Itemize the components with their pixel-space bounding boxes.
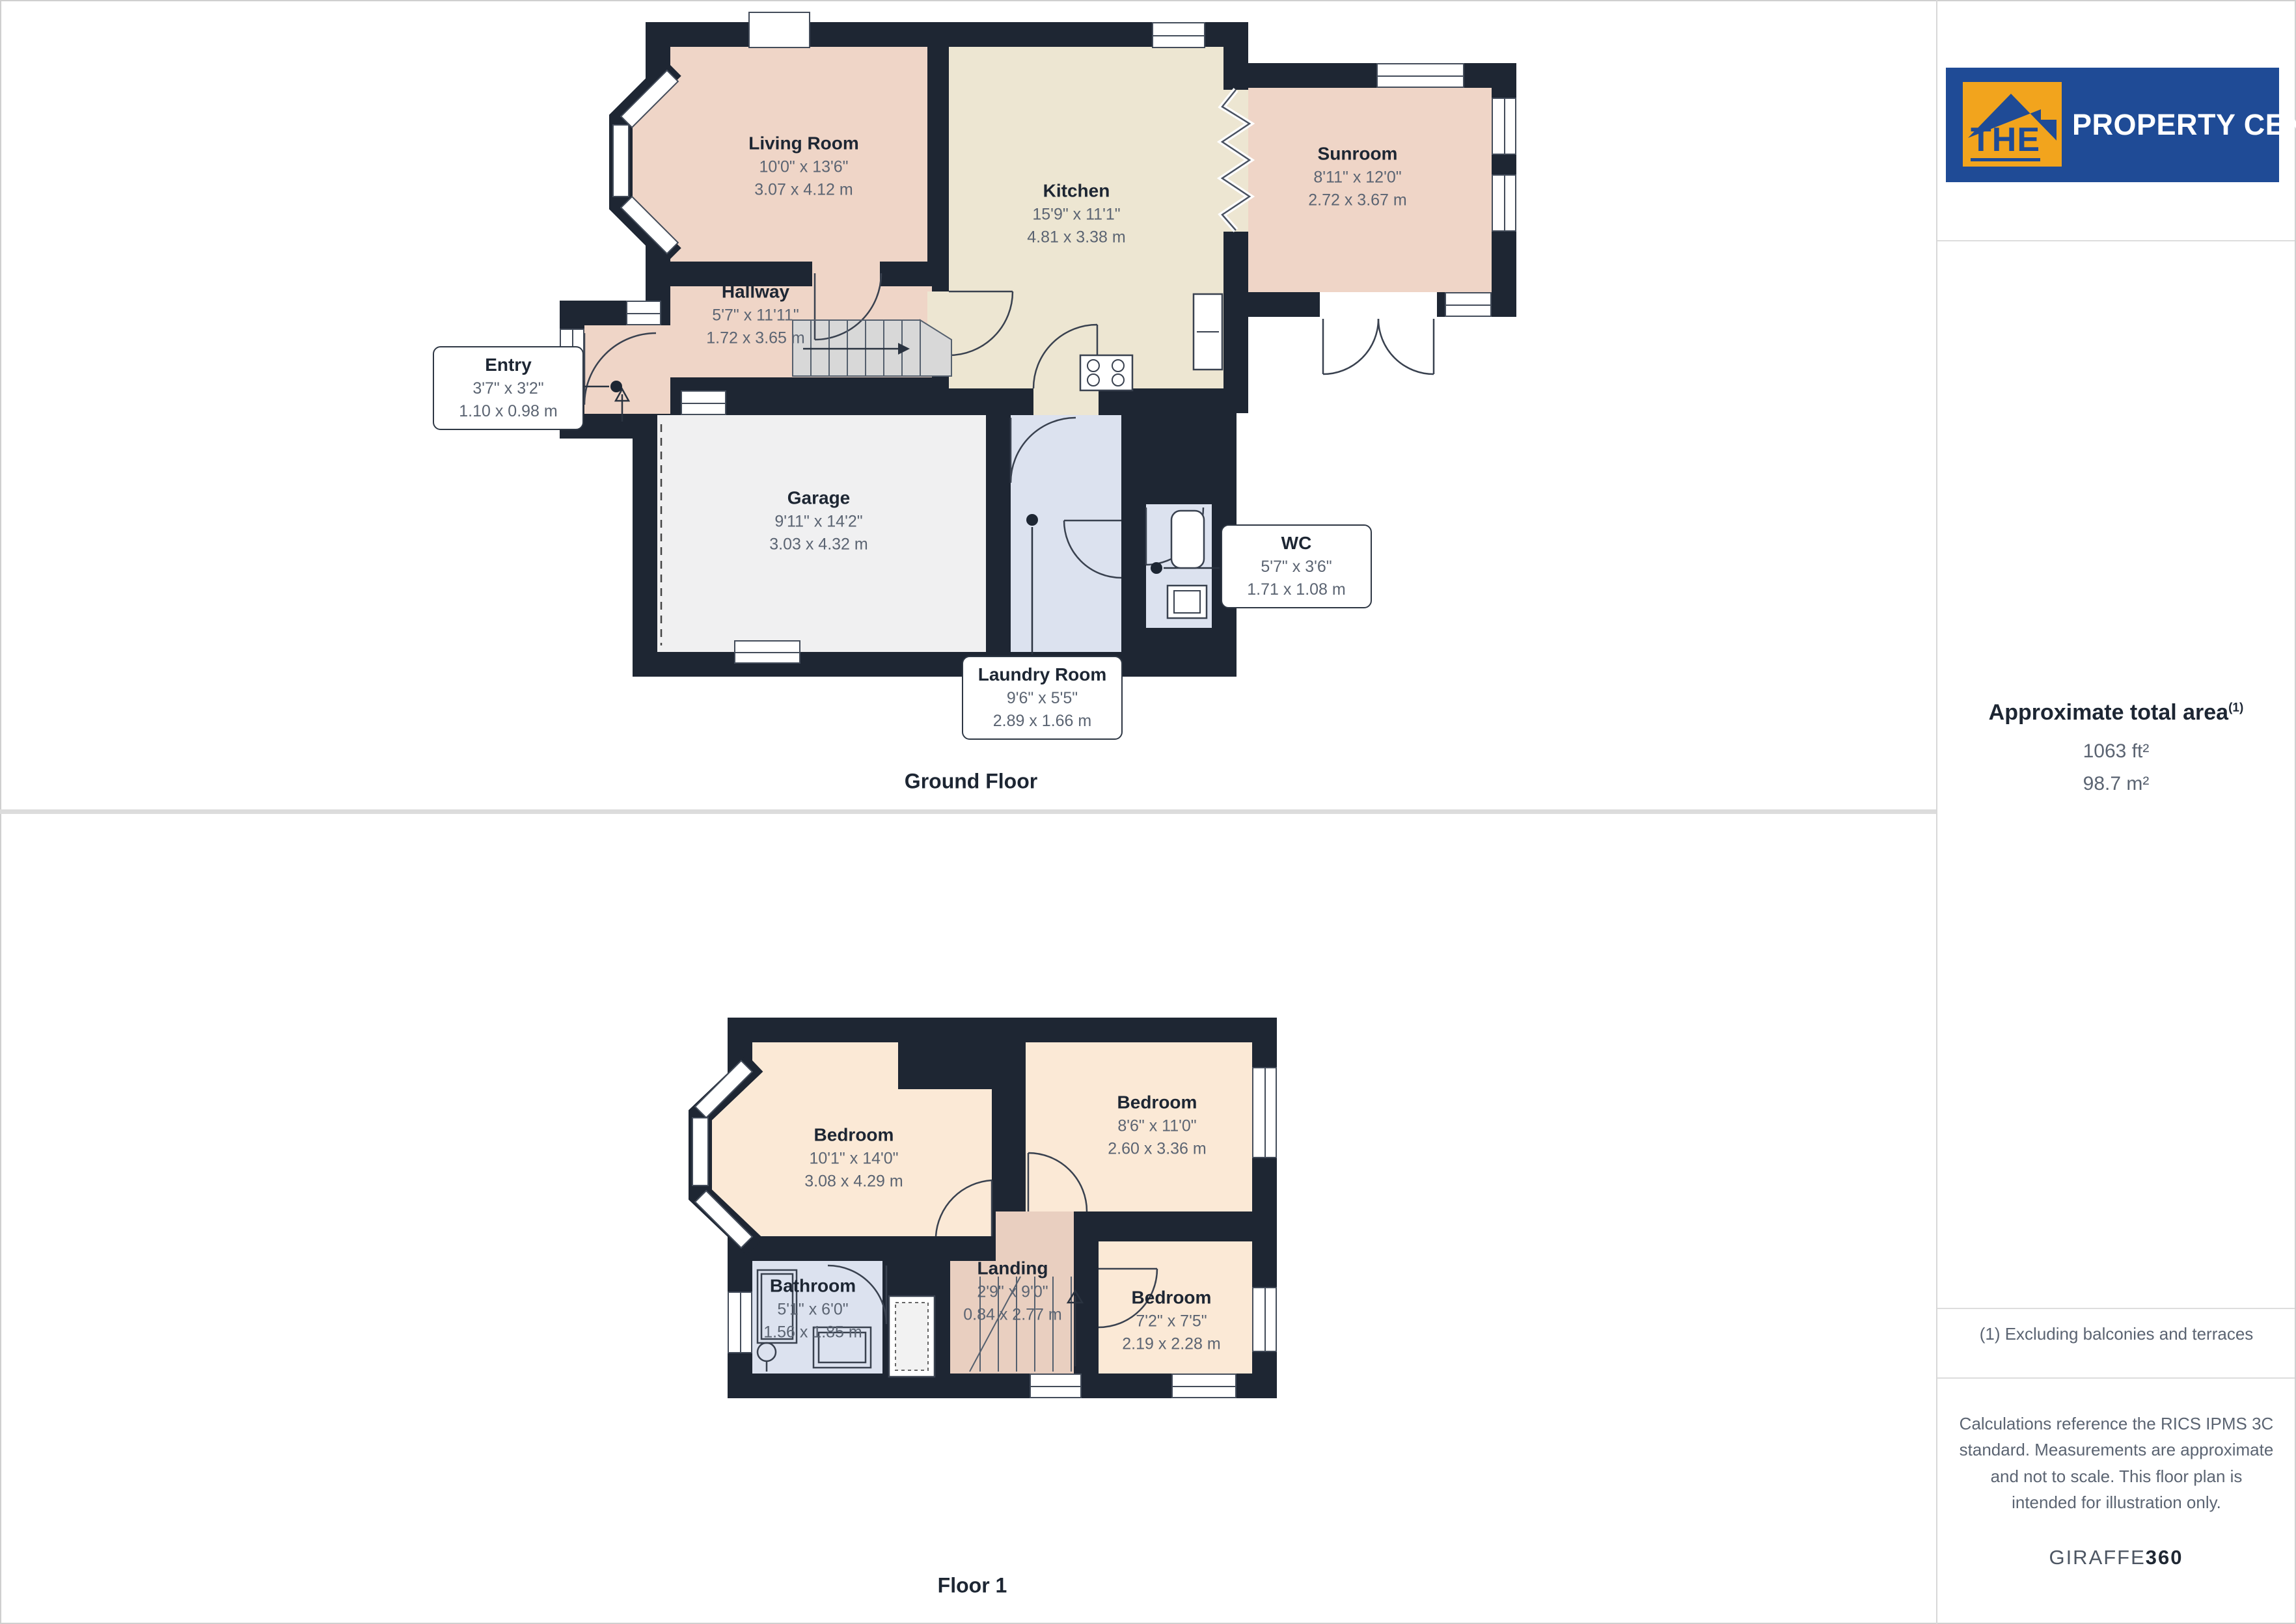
landing-connector — [996, 1211, 1074, 1261]
room-label-bathroom: Bathroom 5'1" x 6'0" 1.56 x 1.85 m — [763, 1274, 862, 1345]
property-centre-logo: THE PROPERTY CENTRE — [1946, 68, 2279, 182]
room-label-landing: Landing 2'9" x 9'0" 0.84 x 2.77 m — [963, 1256, 1061, 1327]
room-label-bedroom-right: Bedroom 8'6" x 11'0" 2.60 x 3.36 m — [1108, 1090, 1206, 1161]
total-area-ft: 1063 ft² — [1937, 740, 2295, 763]
room-label-bedroom-small: Bedroom 7'2" x 7'5" 2.19 x 2.28 m — [1122, 1286, 1220, 1357]
floor-section-divider — [0, 809, 1936, 814]
sunroom-window-right-2 — [1492, 174, 1516, 232]
room-laundry-corridor — [1011, 415, 1121, 652]
sunroom-window-right-1 — [1492, 98, 1516, 155]
giraffe360-logo: GIRAFFE360 — [1937, 1546, 2295, 1569]
bedroom-right-window — [1252, 1067, 1277, 1158]
sunroom-window-top — [1376, 63, 1464, 88]
doorway-kitchen-corridor — [1033, 388, 1099, 415]
total-area-heading: Approximate total area(1) — [1937, 700, 2295, 725]
logo-house-icon: THE — [1963, 82, 2062, 167]
room-wc — [1146, 504, 1212, 628]
doorway-hallway-kitchen — [927, 291, 949, 355]
living-room-chimney-bay — [748, 12, 810, 48]
room-label-garage: Garage 9'11" x 14'2" 3.03 x 4.32 m — [769, 486, 868, 557]
landing-window-bottom — [1030, 1374, 1082, 1398]
bathroom-window-left — [728, 1292, 752, 1353]
room-label-living-room: Living Room 10'0" x 13'6" 3.07 x 4.12 m — [748, 131, 859, 202]
sidebar-divider — [1936, 0, 1937, 1624]
bedroom-small-window-right — [1252, 1287, 1277, 1352]
chimney-breast-floor1 — [898, 1018, 1015, 1089]
sidebar-rule-3 — [1937, 1377, 2295, 1379]
room-label-sunroom: Sunroom 8'11" x 12'0" 2.72 x 3.67 m — [1308, 142, 1406, 213]
callout-entry: Entry 3'7" x 3'2" 1.10 x 0.98 m — [433, 346, 584, 430]
room-label-hallway: Hallway 5'7" x 11'11" 1.72 x 3.65 m — [706, 280, 804, 351]
floorplan-sheet: Living Room 10'0" x 13'6" 3.07 x 4.12 m … — [0, 0, 2296, 1624]
room-entry — [584, 325, 670, 414]
sunroom-french-door-opening — [1320, 292, 1437, 317]
sidebar-rule-2 — [1937, 1308, 2295, 1309]
sunroom-window-bottom — [1445, 292, 1492, 317]
kitchen-window — [1152, 22, 1205, 48]
ground-floor-label: Ground Floor — [905, 770, 1037, 794]
disclaimer-text: Calculations reference the RICS IPMS 3C … — [1956, 1411, 2276, 1515]
room-label-kitchen: Kitchen 15'9" x 11'1" 4.81 x 3.38 m — [1027, 179, 1125, 250]
callout-wc: WC 5'7" x 3'6" 1.71 x 1.08 m — [1221, 524, 1372, 608]
garage-window-top — [681, 390, 726, 415]
entry-window-top — [626, 301, 661, 325]
bedroom-small-window-bottom — [1171, 1374, 1237, 1398]
area-footnote: (1) Excluding balconies and terraces — [1956, 1321, 2276, 1347]
sidebar-rule-1 — [1937, 240, 2295, 241]
callout-laundry-room: Laundry Room 9'6" x 5'5" 2.89 x 1.66 m — [962, 656, 1123, 740]
total-area-m: 98.7 m² — [1937, 773, 2295, 795]
floor1-label: Floor 1 — [938, 1574, 1007, 1598]
doorway-living-hallway — [812, 262, 880, 286]
room-label-bedroom-large: Bedroom 10'1" x 14'0" 3.08 x 4.29 m — [804, 1123, 903, 1194]
stairs-ground — [793, 320, 920, 376]
garage-window-bottom — [734, 640, 800, 664]
